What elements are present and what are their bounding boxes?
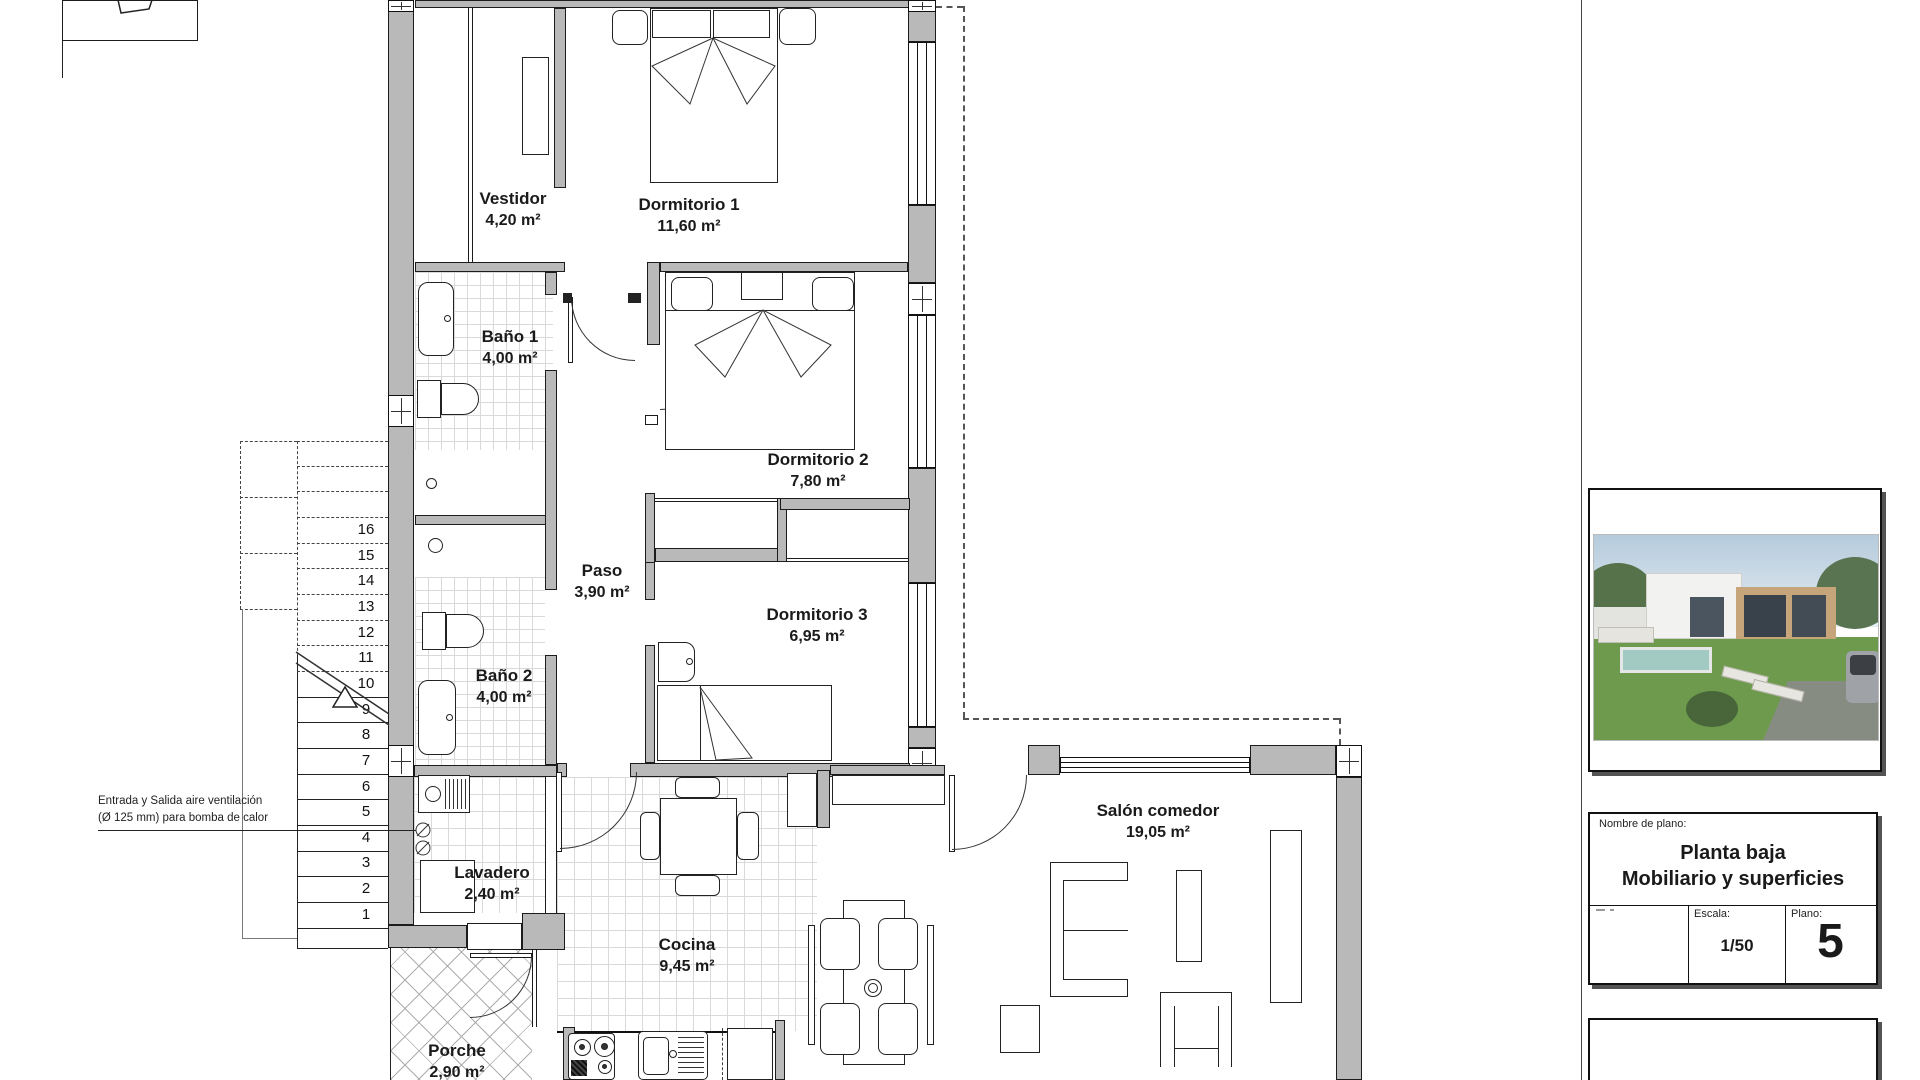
bed-fold-dorm1 — [652, 38, 775, 104]
room-label-bano2: Baño 2 4,00 m² — [476, 665, 533, 709]
glass-window — [1744, 595, 1786, 637]
room-label-cocina: Cocina 9,45 m² — [659, 934, 716, 978]
erased-text-artifact — [1610, 909, 1614, 911]
erased-text-artifact — [1596, 909, 1605, 911]
room-label-lavadero: Lavadero 2,40 m² — [454, 862, 530, 906]
room-label-dormitorio2: Dormitorio 2 7,80 m² — [767, 449, 868, 493]
empty-title-box — [1588, 1018, 1878, 1080]
room-label-porche: Porche 2,90 m² — [428, 1040, 486, 1080]
car-window — [1850, 655, 1876, 675]
escala-value: 1/50 — [1688, 936, 1786, 956]
sheet-border-line — [1581, 0, 1582, 1080]
escala-label: Escala: — [1694, 908, 1730, 920]
pool — [1620, 647, 1712, 673]
vent-symbol — [416, 823, 430, 855]
plan-title-line2: Mobiliario y superficies — [1590, 866, 1876, 892]
room-label-dormitorio3: Dormitorio 3 6,95 m² — [766, 604, 867, 648]
outdoor-sofa — [1598, 627, 1654, 643]
plano-value: 5 — [1785, 914, 1876, 969]
bed-fold-dorm3 — [700, 687, 752, 760]
bush — [1686, 691, 1738, 727]
plan-title-line1: Planta baja — [1590, 840, 1876, 866]
glass-window — [1792, 595, 1826, 637]
bed-fold-dorm2 — [695, 310, 831, 377]
site-plan-shape — [118, 0, 152, 13]
villa-render-frame — [1588, 488, 1882, 772]
title-block-name-label: Nombre de plano: — [1599, 818, 1686, 830]
plan-title: Planta baja Mobiliario y superficies — [1590, 840, 1876, 892]
floorplan-sheet: 16151413121110987654321 Entrada y Salida… — [0, 0, 1920, 1080]
room-label-bano1: Baño 1 4,00 m² — [482, 326, 539, 370]
room-label-salon: Salón comedor 19,05 m² — [1097, 800, 1220, 844]
title-block: Nombre de plano: Planta baja Mobiliario … — [1588, 812, 1878, 985]
glass-window — [1690, 597, 1724, 637]
room-label-vestidor: Vestidor 4,20 m² — [479, 188, 546, 232]
villa-render-image — [1593, 534, 1879, 741]
title-block-divider — [1590, 905, 1876, 906]
room-label-paso: Paso 3,90 m² — [574, 560, 629, 604]
room-label-dormitorio1: Dormitorio 1 11,60 m² — [638, 194, 739, 238]
